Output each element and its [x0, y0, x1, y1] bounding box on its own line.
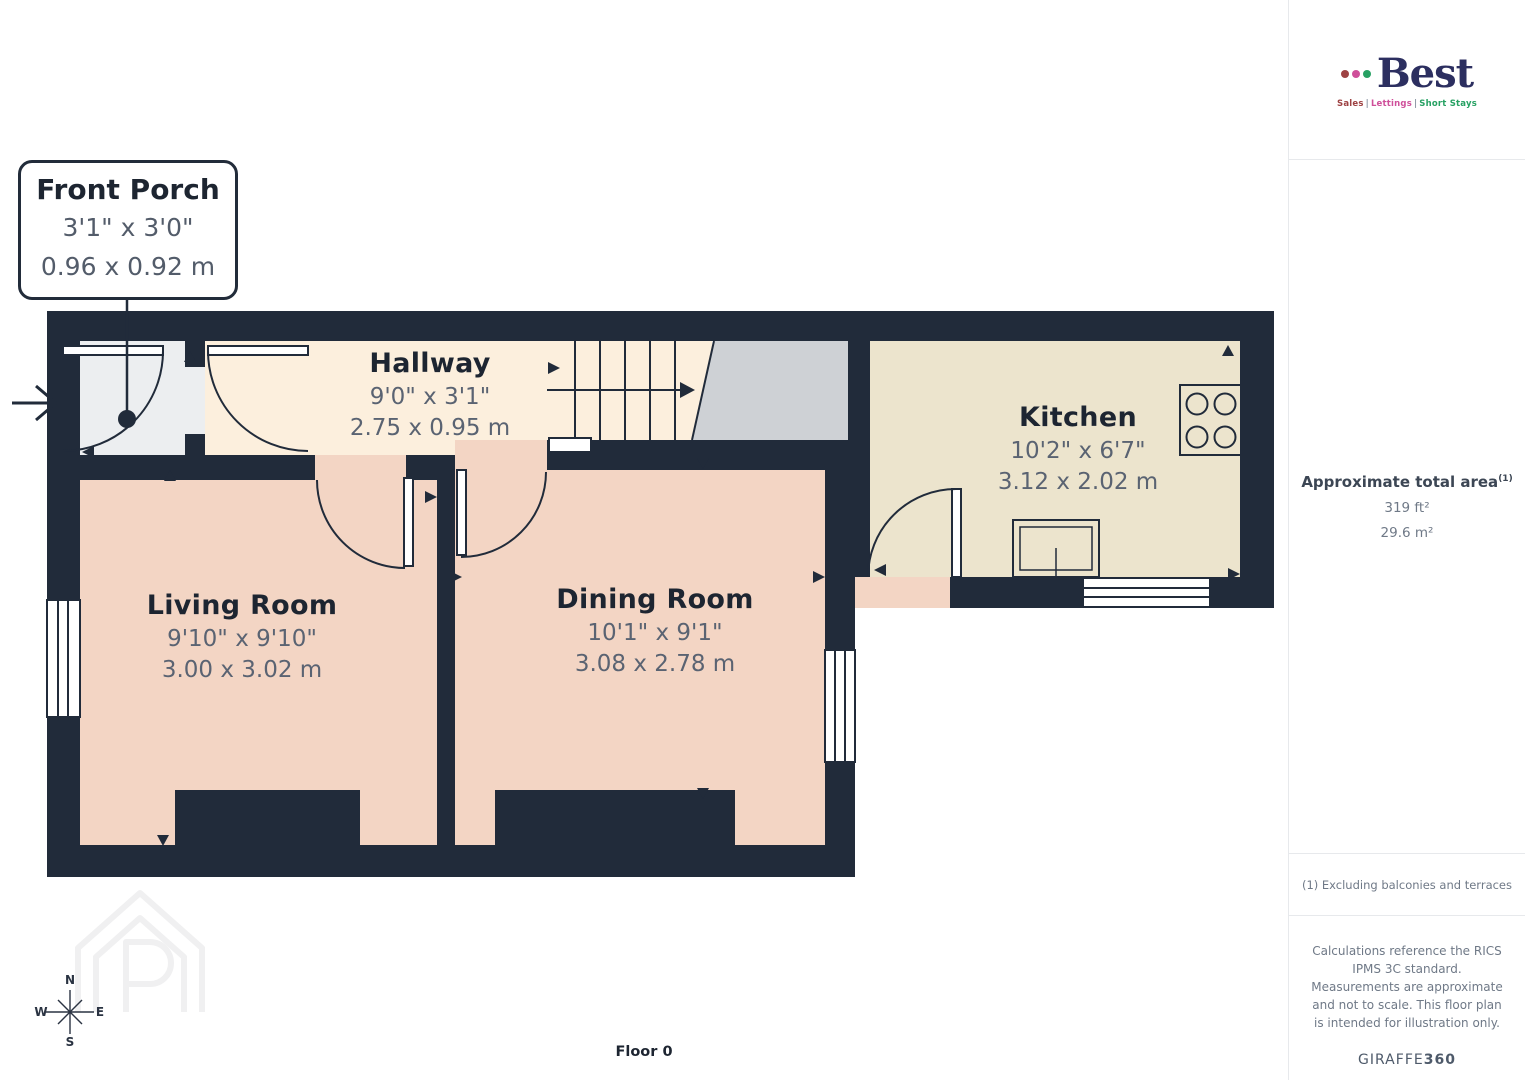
room-title: Dining Room — [507, 584, 803, 615]
window-icon — [1083, 578, 1210, 607]
room-dim-metric: 3.00 x 3.02 m — [94, 657, 390, 683]
room-dim-metric: 0.96 x 0.92 m — [25, 251, 231, 284]
compass-icon — [46, 990, 94, 1034]
brand-dot-green-icon — [1363, 70, 1371, 78]
room-title: Kitchen — [930, 402, 1226, 433]
room-dim-imperial: 10'1" x 9'1" — [507, 620, 803, 646]
dining-room-label: Dining Room 10'1" x 9'1" 3.08 x 2.78 m — [507, 584, 803, 677]
brand-section: Best Sales|Lettings|Short Stays — [1289, 0, 1525, 160]
room-dim-imperial: 10'2" x 6'7" — [930, 438, 1226, 464]
dining-door-gap-floor — [455, 440, 547, 470]
brand-logo: Best — [1341, 50, 1473, 97]
compass-w: W — [34, 1005, 47, 1019]
brand-name: Best — [1377, 50, 1473, 97]
living-room-label: Living Room 9'10" x 9'10" 3.00 x 3.02 m — [94, 590, 390, 683]
room-dim-metric: 3.12 x 2.02 m — [930, 469, 1226, 495]
room-dim-metric: 3.08 x 2.78 m — [507, 651, 803, 677]
brand-tagline: Sales|Lettings|Short Stays — [1337, 99, 1477, 109]
room-dim-metric: 2.75 x 0.95 m — [285, 415, 575, 441]
footnote: (1) Excluding balconies and terraces — [1289, 855, 1525, 916]
hallway-label: Hallway 9'0" x 3'1" 2.75 x 0.95 m — [285, 348, 575, 441]
disclaimer-section: Calculations reference the RICS IPMS 3C … — [1289, 917, 1525, 1080]
compass-e: E — [96, 1005, 104, 1019]
giraffe360-credit: GIRAFFE360 — [1358, 1050, 1456, 1071]
total-area-label: Approximate total area(1) — [1301, 473, 1512, 491]
room-dim-imperial: 9'10" x 9'10" — [94, 626, 390, 652]
window-icon — [47, 600, 80, 717]
giraffe360-watermark — [78, 893, 202, 1012]
room-dim-imperial: 9'0" x 3'1" — [285, 384, 575, 410]
kitchen-threshold-floor — [855, 577, 950, 608]
compass-n: N — [65, 973, 75, 987]
landing-floor — [692, 341, 848, 440]
room-title: Front Porch — [25, 173, 231, 206]
info-panel: Best Sales|Lettings|Short Stays Approxim… — [1288, 0, 1525, 1080]
brand-dot-pink-icon — [1352, 70, 1360, 78]
room-dim-imperial: 3'1" x 3'0" — [25, 212, 231, 245]
front-porch-callout: Front Porch 3'1" x 3'0" 0.96 x 0.92 m — [18, 160, 238, 300]
kitchen-label: Kitchen 10'2" x 6'7" 3.12 x 2.02 m — [930, 402, 1226, 495]
total-area-imperial: 319 ft² — [1384, 500, 1429, 516]
disclaimer-text: Calculations reference the RICS IPMS 3C … — [1308, 942, 1506, 1032]
floor-label: Floor 0 — [0, 1044, 1288, 1060]
tagline-short-stays: Short Stays — [1419, 99, 1477, 109]
tagline-lettings: Lettings — [1371, 99, 1412, 109]
brand-dot-red-icon — [1341, 70, 1349, 78]
footnote-marker: (1) — [1498, 474, 1513, 484]
window-icon — [825, 650, 855, 762]
total-area-section: Approximate total area(1) 319 ft² 29.6 m… — [1289, 160, 1525, 854]
tagline-sales: Sales — [1337, 99, 1364, 109]
room-title: Hallway — [285, 348, 575, 379]
living-door-gap-floor — [315, 455, 406, 480]
room-title: Living Room — [94, 590, 390, 621]
total-area-metric: 29.6 m² — [1381, 525, 1434, 541]
